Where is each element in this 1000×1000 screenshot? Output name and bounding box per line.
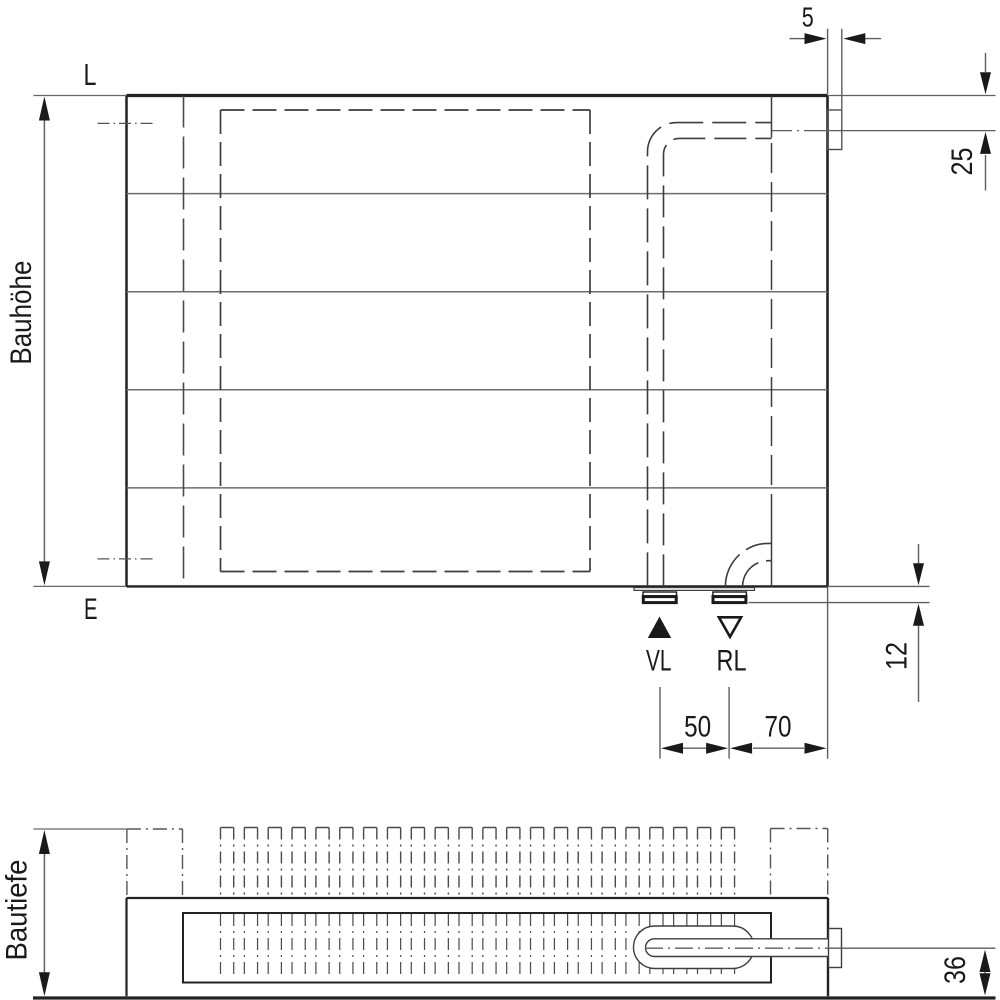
svg-text:50: 50	[684, 711, 711, 744]
svg-text:E: E	[84, 593, 98, 626]
svg-text:RL: RL	[717, 645, 747, 678]
svg-text:VL: VL	[646, 645, 672, 678]
svg-text:Bautiefe: Bautiefe	[1, 860, 34, 961]
svg-text:Bauhöhe: Bauhöhe	[5, 261, 38, 365]
svg-text:25: 25	[946, 148, 979, 176]
svg-text:36: 36	[939, 956, 972, 984]
svg-text:12: 12	[881, 642, 914, 670]
svg-text:5: 5	[802, 2, 814, 33]
svg-text:70: 70	[765, 711, 792, 744]
svg-text:L: L	[84, 57, 97, 92]
